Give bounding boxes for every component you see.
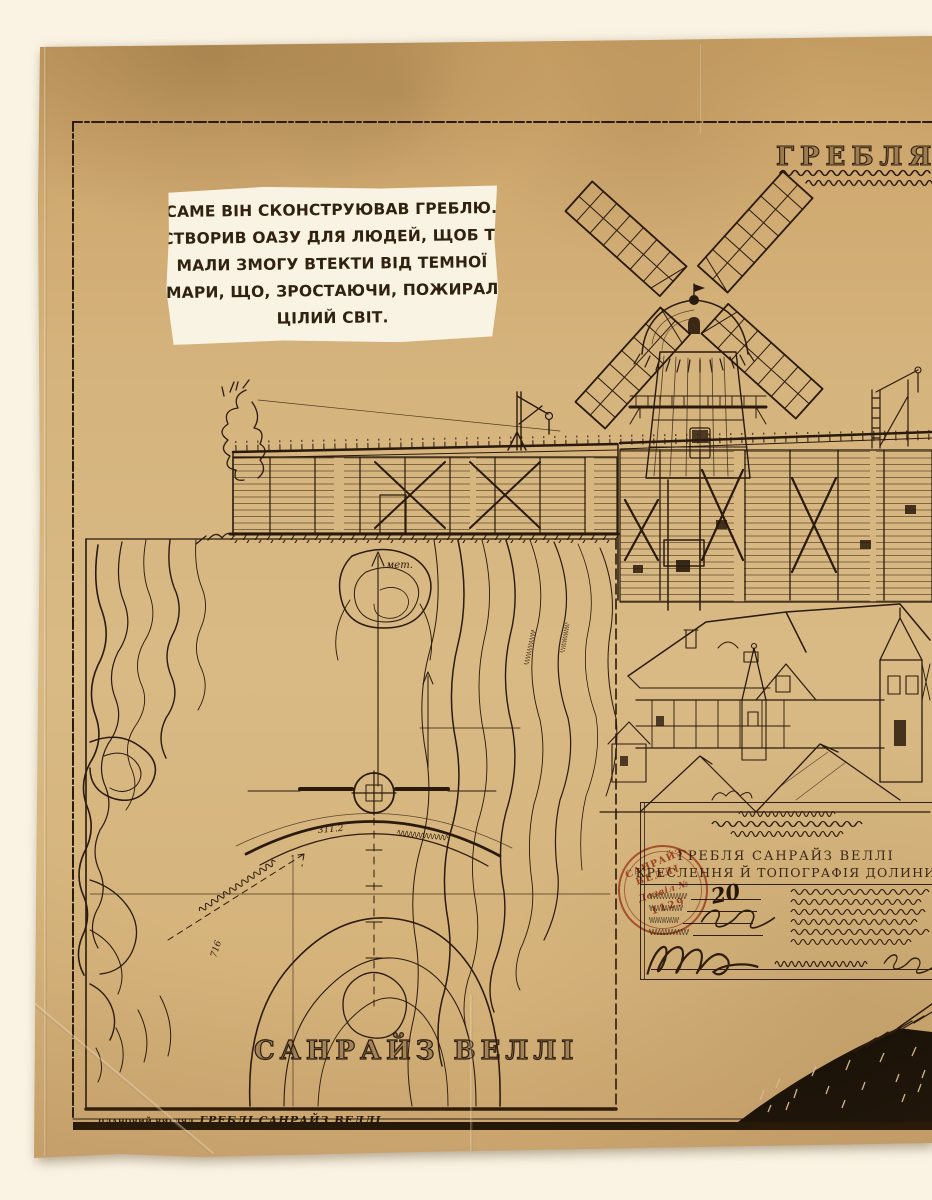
signature-scrawl — [882, 947, 932, 974]
scrawl-line — [791, 909, 925, 916]
dam-wall-drawing — [230, 367, 932, 610]
map-meters-label: мет. — [386, 560, 413, 571]
scrawl-line — [775, 961, 867, 968]
scrawl-line — [791, 889, 929, 896]
scrawl-line — [791, 929, 929, 936]
narration-line: СТВОРИВ ОАЗУ ДЛЯ ЛЮДЕЙ, ЩОБ ТІ — [162, 222, 501, 253]
paper-shadow-wrap: мет. 311.2 716 ГРЕБЛЯ СА САМЕ ВІН СКОНСТ… — [0, 0, 932, 1200]
comic-page: мет. 311.2 716 ГРЕБЛЯ СА САМЕ ВІН СКОНСТ… — [0, 0, 932, 1200]
aged-blueprint-paper: мет. 311.2 716 ГРЕБЛЯ СА САМЕ ВІН СКОНСТ… — [0, 0, 932, 1200]
village-drawing — [600, 604, 930, 812]
scrawl-line — [712, 821, 862, 828]
topographic-map: мет. 311.2 716 — [78, 539, 616, 1109]
map-elevation-a: 311.2 — [317, 824, 344, 836]
map-elevation-b: 716 — [209, 939, 224, 959]
scrawl-line — [791, 939, 911, 946]
narration-line: МАЛИ ЗМОГУ ВТЕКТИ ВІД ТЕМНОЇ — [176, 249, 487, 280]
scrawl-line — [731, 831, 843, 838]
scrawl-line — [739, 811, 835, 818]
narration-box: САМЕ ВІН СКОНСТРУЮВАВ ГРЕБЛЮ. СТВОРИВ ОА… — [165, 184, 499, 345]
title-subtext-scrawl — [780, 171, 932, 186]
sheet-title: ГРЕБЛЯ СА — [776, 142, 932, 172]
footer-caption-label: ГРЕБЛІ САНРАЙЗ ВЕЛЛІ — [199, 1114, 381, 1127]
windmill-drawing — [565, 171, 822, 478]
narration-line: ХМАРИ, ЩО, ЗРОСТАЮЧИ, ПОЖИРАЛА — [154, 276, 511, 307]
narration-line: САМЕ ВІН СКОНСТРУЮВАВ ГРЕБЛЮ. — [165, 195, 497, 226]
scrawl-line — [791, 919, 917, 926]
signature-scrawl — [645, 937, 763, 981]
scrawl-line — [791, 899, 921, 906]
footer-caption: ПЛАНОВИЙ ВИГЛЯД ГРЕБЛІ САНРАЙЗ ВЕЛЛІ — [98, 1109, 381, 1128]
narration-line: ЦІЛИЙ СВІТ. — [276, 304, 388, 332]
footer-caption-small: ПЛАНОВИЙ ВИГЛЯД — [98, 1117, 194, 1126]
blueprint-drawing: мет. 311.2 716 — [0, 0, 932, 1200]
map-title: САНРАЙЗ ВЕЛЛІ — [254, 1036, 504, 1066]
dark-hill — [738, 1004, 932, 1122]
